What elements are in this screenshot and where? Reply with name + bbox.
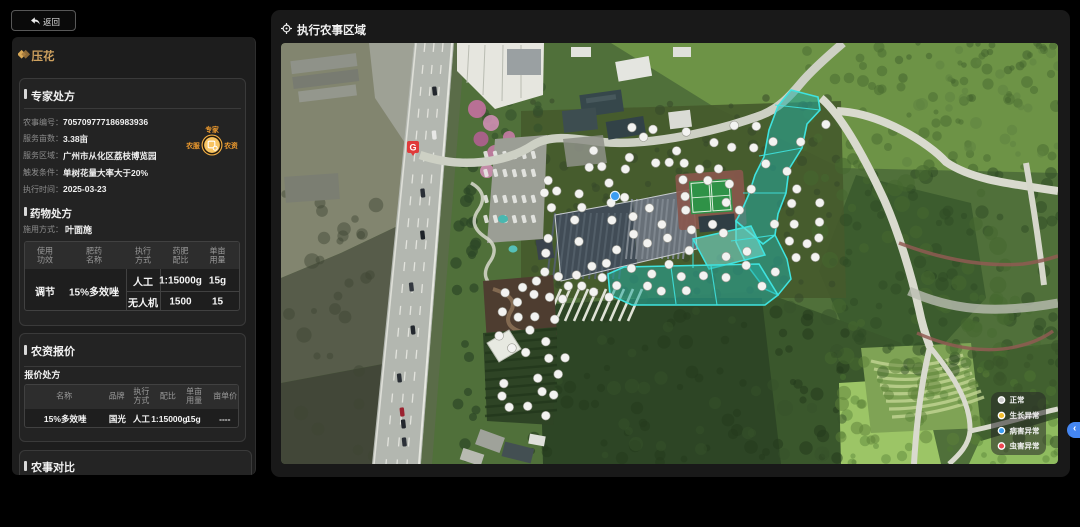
svg-text:虫害异常: 虫害异常 [1010, 440, 1040, 450]
svg-text:病害异常: 病害异常 [1010, 425, 1040, 435]
svg-text:农资: 农资 [223, 141, 238, 150]
svg-text:G: G [409, 143, 416, 153]
svg-text:生长异常: 生长异常 [1010, 410, 1040, 420]
svg-text:农服: 农服 [185, 141, 200, 150]
svg-text:专家: 专家 [205, 125, 219, 134]
svg-text:正常: 正常 [1010, 394, 1026, 404]
